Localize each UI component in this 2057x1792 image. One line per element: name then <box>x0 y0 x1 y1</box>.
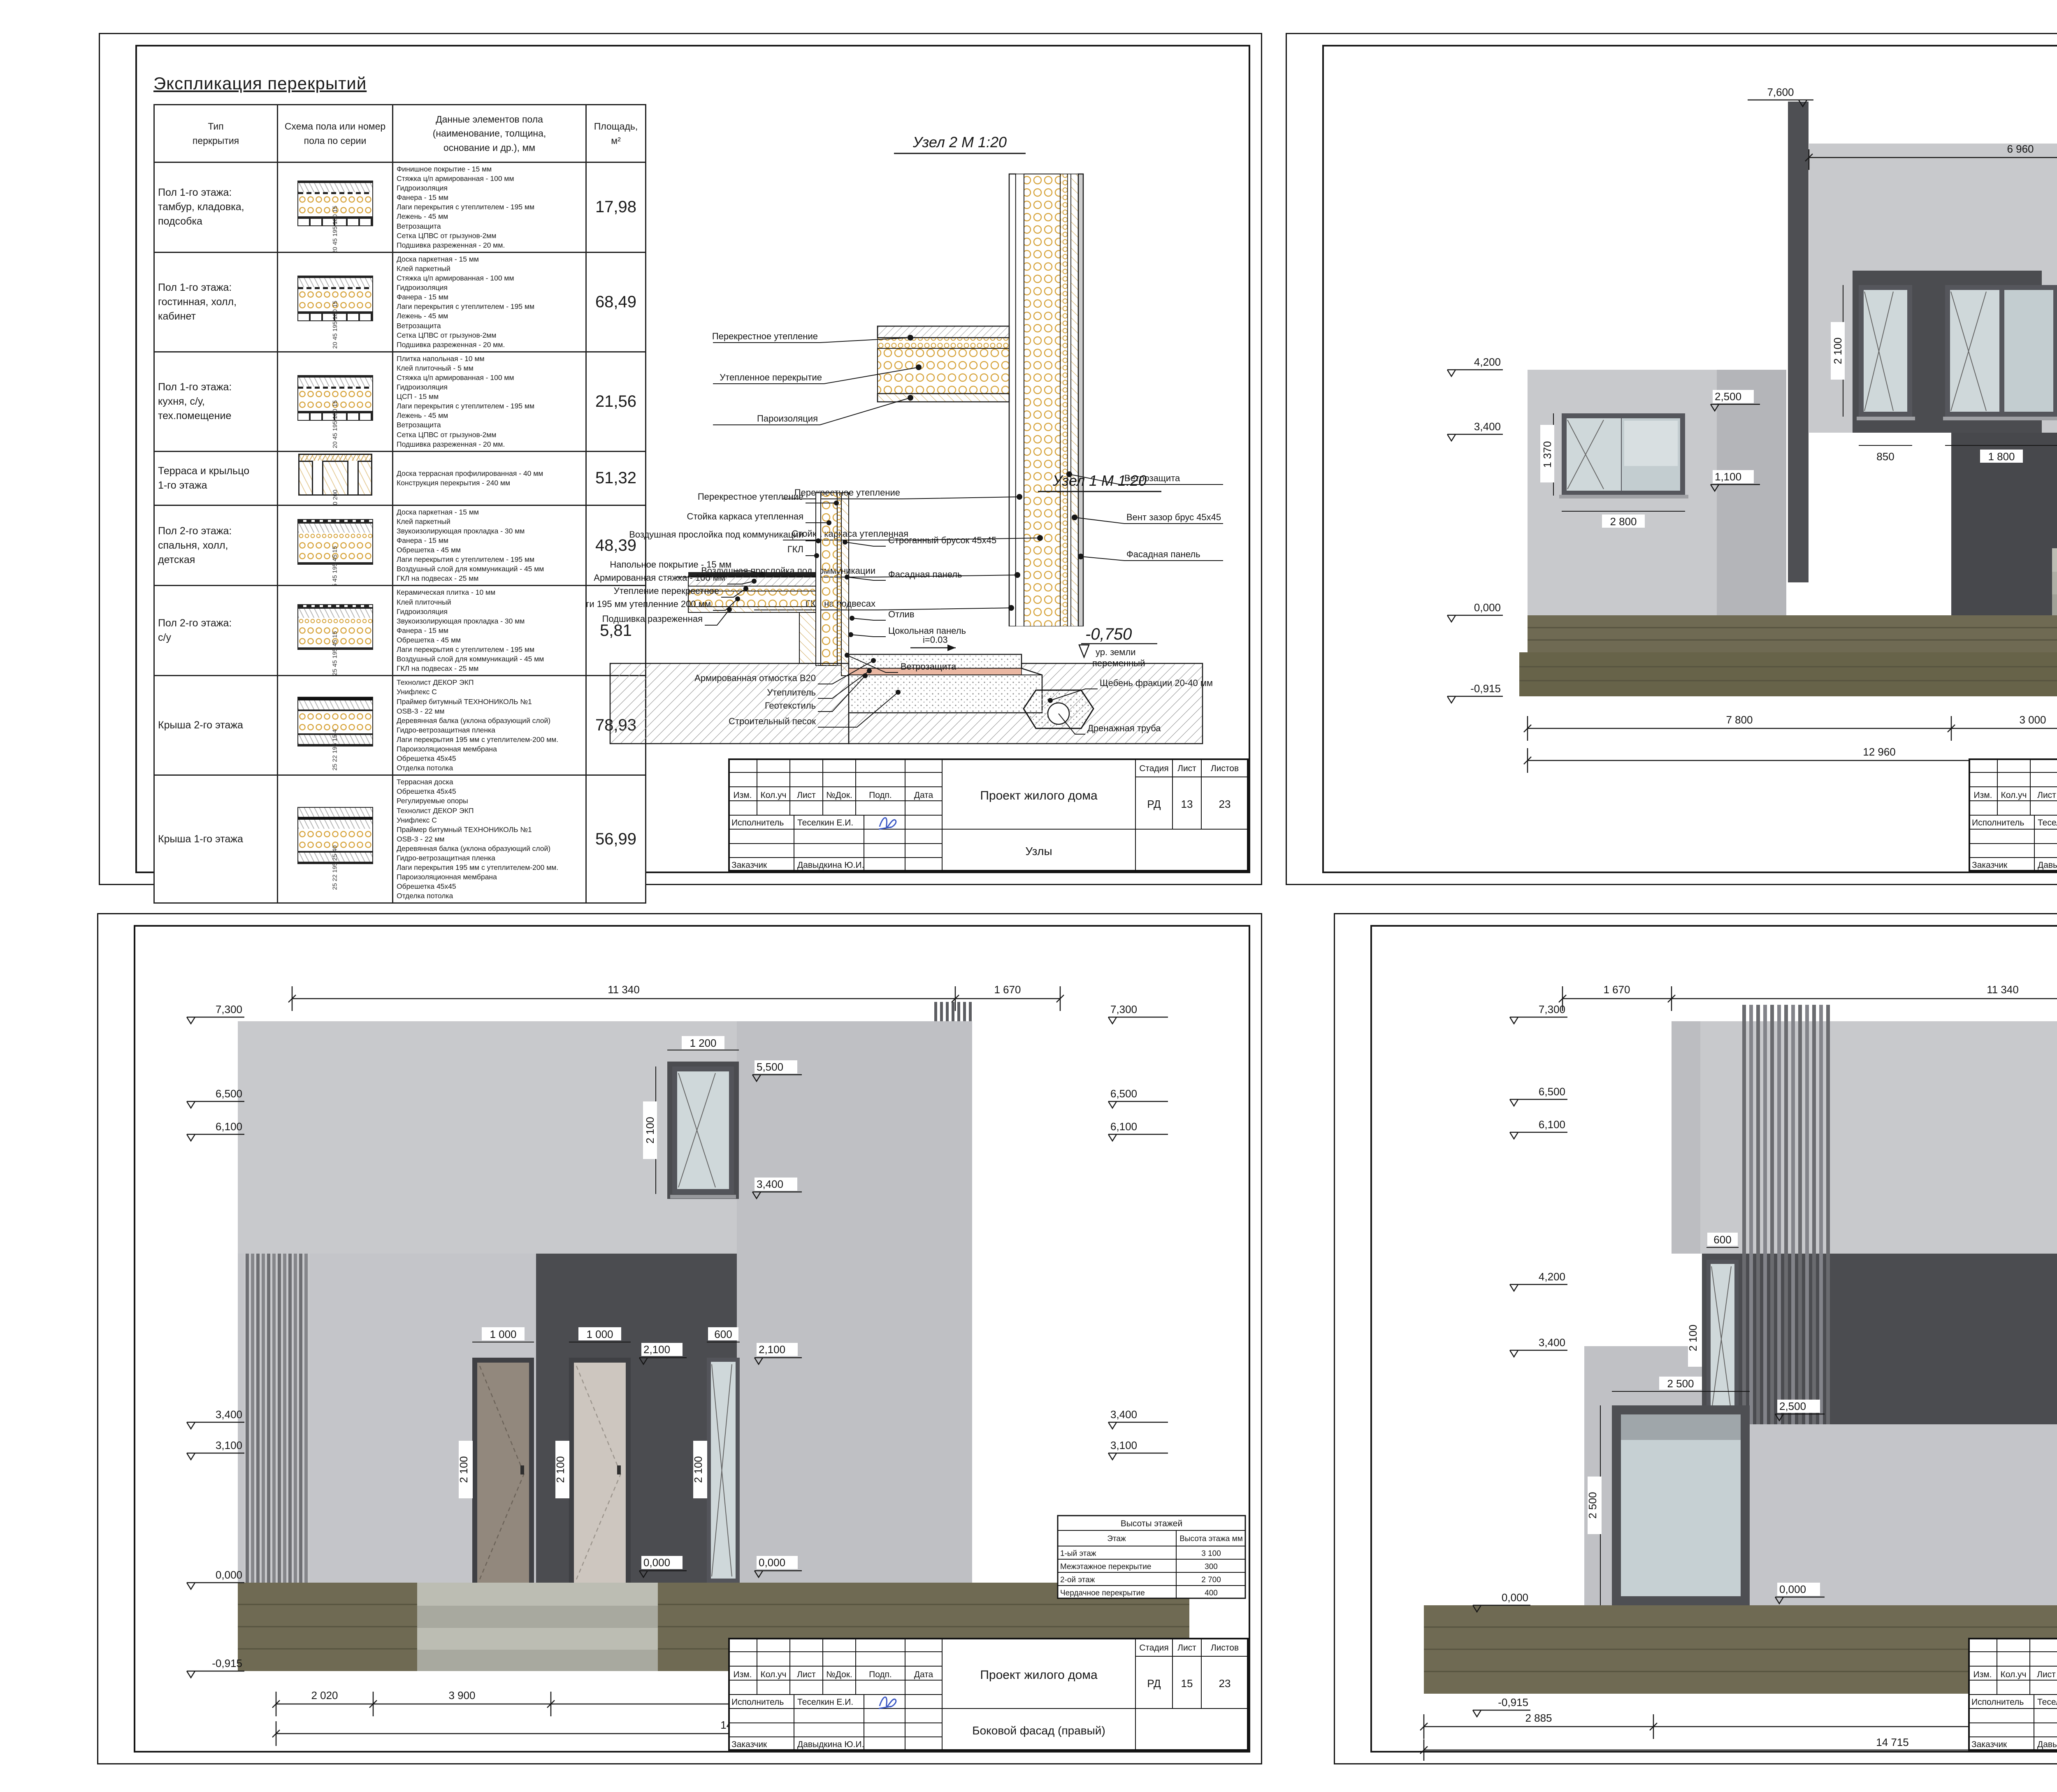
floor-area: 68,49 <box>586 252 646 352</box>
terrace-steps <box>2052 572 2057 594</box>
dim-label: 2 500 <box>1667 1377 1694 1390</box>
executor-name: Теселкин Е.И. <box>797 818 853 828</box>
project-title: Проект жилого дома <box>980 1668 1098 1682</box>
explication-title: Экспликация перекрытий <box>153 74 367 93</box>
entrance-dark-panel <box>536 1254 737 1583</box>
dim-label: 12 960 <box>1863 746 1896 758</box>
sheet-uzly: Экспликация перекрытий Тип перкрытия Схе… <box>99 33 1262 885</box>
title-block: Изм. Кол.уч Лист №Док. Подп. Дата Исполн… <box>728 758 1249 872</box>
ground-note: переменный <box>1092 658 1145 668</box>
dim-label: 1 800 <box>1988 450 2015 463</box>
stage-label: Стадия <box>1139 764 1169 773</box>
dim-label: 600 <box>1713 1233 1731 1246</box>
level-label: 6,100 <box>216 1120 242 1133</box>
heights-floor: Чердачное перекрытие <box>1060 1589 1145 1597</box>
customer-label: Заказчик <box>1971 1740 2007 1749</box>
executor-label: Исполнитель <box>1972 818 2024 828</box>
dim-label: 14 715 <box>1876 1736 1909 1748</box>
level-label: 6,100 <box>1110 1120 1137 1133</box>
leader-label: Строганный брусок 45х45 <box>888 535 996 545</box>
stamp-col: №Док. <box>826 791 852 800</box>
porch-steps <box>417 1583 658 1671</box>
dim-label: 2 100 <box>692 1456 704 1483</box>
leader-label: ГКЛ <box>787 544 803 554</box>
level-label: 3,400 <box>757 1178 783 1190</box>
floor-layers: Финишное покрытие - 15 мм Стяжка ц/п арм… <box>393 162 586 253</box>
stack-dims: 20 45 195 180 15 <box>332 400 339 448</box>
customer-label: Заказчик <box>731 1740 767 1749</box>
executor-name: Теселкин Е.И. <box>797 1697 853 1707</box>
window-glass <box>677 1071 729 1189</box>
heights-value: 400 <box>1205 1589 1218 1597</box>
level-label: 3,400 <box>1474 420 1501 433</box>
executor-name: Теселкин Е.И. <box>2038 818 2057 828</box>
customer-label: Заказчик <box>1972 860 2008 870</box>
executor-label: Исполнитель <box>1971 1697 2024 1707</box>
title-block: Изм.Кол.учЛист№Док.Подп.Дата Исполнитель… <box>728 1638 1249 1751</box>
first-floor-volume <box>1702 1424 2057 1605</box>
leader-label: Отлив <box>888 609 915 619</box>
level-label: 3,100 <box>1110 1439 1137 1451</box>
heights-title: Высоты этажей <box>1121 1519 1182 1528</box>
heights-floor: 1-ый этаж <box>1060 1549 1096 1558</box>
floor-layers: Керамическая плитка - 10 мм Клей плиточн… <box>393 586 586 676</box>
table-row: Пол 2-го этажа: с/у 25 45 195 45 15 Кера… <box>154 586 646 676</box>
slope-label: i=0.03 <box>923 635 948 645</box>
floor-layers: Доска паркетная - 15 мм Клей паркетный З… <box>393 505 586 586</box>
stack-dims: 20 45 195 180 15 <box>332 301 339 349</box>
second-floor-volume <box>1672 1021 2057 1254</box>
executor-name: Теселкин Е.И. <box>2037 1697 2057 1707</box>
leader-label: Фасадная панель <box>888 569 962 580</box>
page: { "palette":{"paper":"#ffffff","line":"#… <box>0 0 2057 1792</box>
floor-area: 21,56 <box>586 352 646 451</box>
stack-dims: 25 22 195 15 4 <box>332 730 339 771</box>
floor-type: Терраса и крыльцо 1-го этажа <box>154 451 278 505</box>
floor-layers: Террасная доска Обрешетка 45х45 Регулиру… <box>393 775 586 903</box>
executor-label: Исполнитель <box>731 818 784 828</box>
stamp-col: Дата <box>914 791 933 800</box>
dim-label: 1 200 <box>690 1037 716 1049</box>
window-glass <box>2004 290 2053 412</box>
stamp-col: Лист <box>2037 1670 2056 1679</box>
ground-level: -0,750 <box>1085 625 1132 643</box>
sheets-total: 23 <box>1219 798 1231 810</box>
customer-label: Заказчик <box>731 860 767 870</box>
leader-label: Перекрестное утепление <box>712 331 818 341</box>
dim-label: 2 500 <box>1586 1492 1599 1518</box>
level-label: 1,100 <box>1715 471 1741 483</box>
leader-label: Дренажная труба <box>1087 723 1161 733</box>
level-label: 0,000 <box>1474 601 1501 614</box>
node-title: Узел 1 М 1:20 <box>1052 472 1147 489</box>
stack-dims: 40 200 <box>332 489 339 505</box>
level-label: -0,915 <box>1498 1696 1528 1709</box>
terrace-steps <box>2052 548 2057 572</box>
window-glass <box>1864 290 1907 412</box>
door-handle <box>520 1465 524 1474</box>
node-title: Узел 2 М 1:20 <box>912 134 1007 151</box>
roof-slats <box>934 1002 972 1022</box>
dim-label: 1 670 <box>1603 983 1630 996</box>
leader-label: Напольное покрытие - 15 мм <box>610 559 731 570</box>
stack-dims: 25 45 195 45 15 <box>332 631 339 675</box>
gable-wall <box>737 1021 972 1583</box>
table-row: Пол 1-го этажа: гостинная, холл, кабинет… <box>154 252 646 352</box>
dim-label: 2 100 <box>1832 337 1844 364</box>
dim-label: 1 000 <box>586 1328 613 1340</box>
side-facade-left-drawing: 1 670 11 340 7,300 6,500 6,100 4,200 3,4… <box>1335 914 2057 1763</box>
level-label: 6,500 <box>1539 1085 1565 1098</box>
level-label: 3,100 <box>216 1439 242 1451</box>
level-label: 2,500 <box>1779 1400 1806 1412</box>
table-row: Крыша 1-го этажа 25 22 195 25 40 Террасн… <box>154 775 646 903</box>
node-1-detail: Узел 1 М 1:20 i=0.03 -0,750 ур. земли пе… <box>585 462 1235 746</box>
sheet-label: Лист <box>1177 764 1196 773</box>
dim-label: 2 800 <box>1610 515 1637 528</box>
col-header-type: Тип перкрытия <box>154 105 278 162</box>
first-floor-volume-side <box>1717 370 1786 615</box>
leader-label: Воздушная прослойка под коммуникации <box>629 529 803 540</box>
col-header-area: Площадь, м² <box>586 105 646 162</box>
floor-area: 17,98 <box>586 162 646 253</box>
col-header-scheme: Схема пола или номер пола по серии <box>278 105 393 162</box>
table-row: Крыша 2-го этажа 25 22 195 15 4 Технолис… <box>154 676 646 775</box>
sheet-number: 15 <box>1181 1677 1193 1690</box>
customer-name: Давыдкина Ю.И. <box>797 860 864 870</box>
doc-name: Узлы <box>1025 845 1052 858</box>
heights-value: 3 100 <box>1201 1549 1221 1558</box>
stamp-col: №Док. <box>826 1670 852 1679</box>
floor-type: Пол 2-го этажа: с/у <box>154 586 278 676</box>
door-handle <box>617 1465 621 1474</box>
sheets-label: Листов <box>1211 764 1239 773</box>
stamp-col: Кол.уч <box>761 1670 787 1679</box>
deck <box>1528 615 2057 652</box>
stage-label: Стадия <box>1139 1643 1169 1653</box>
stamp-col: Изм. <box>734 1670 752 1679</box>
level-label: 6,500 <box>216 1087 242 1100</box>
leader-label: Утепленное перекрытие <box>720 372 822 383</box>
stamp-col: Лист <box>797 791 816 800</box>
level-label: 3,400 <box>216 1408 242 1421</box>
heights-value: 300 <box>1205 1562 1218 1571</box>
dim-label: 7 800 <box>1726 714 1753 726</box>
level-label: 7,300 <box>216 1003 242 1015</box>
sheets-total: 23 <box>1219 1677 1231 1690</box>
floor-area: 56,99 <box>586 775 646 903</box>
sheet-label: Лист <box>1177 1643 1196 1653</box>
leader-label: Цокольная панель <box>888 626 966 636</box>
stack-dims: 25 22 195 25 40 <box>332 845 339 890</box>
level-label: 6,100 <box>1539 1118 1565 1131</box>
level-label: -0,915 <box>212 1657 242 1669</box>
customer-name: Давыдкина Ю.И. <box>2038 860 2057 870</box>
dim-label: 2 100 <box>644 1117 656 1143</box>
stamp-col: Дата <box>914 1670 933 1679</box>
front-facade-drawing: 6 960 7,600 4,200 3,400 0,000 -0,915 7,3… <box>1287 34 2057 884</box>
title-block: Изм.Кол.учЛист№Док.Подп.Дата Исполнитель… <box>1969 758 2057 872</box>
stage-value: РД <box>1147 798 1161 810</box>
stamp-col: Кол.уч <box>761 791 787 800</box>
table-row: Терраса и крыльцо 1-го этажа 40 200 Доск… <box>154 451 646 505</box>
ground-note: ур. земли <box>1096 647 1136 657</box>
floor-scheme <box>298 454 372 496</box>
sheet-number: 13 <box>1181 798 1193 810</box>
level-label: 4,200 <box>1474 356 1501 368</box>
level-label: 2,100 <box>643 1343 670 1356</box>
window-glass <box>1950 290 1999 412</box>
dim-label: 2 020 <box>311 1689 338 1702</box>
leader-label: Строительный песок <box>729 716 816 726</box>
level-label: -0,915 <box>1470 682 1501 695</box>
leader-label: Подшивка разреженная <box>602 614 703 624</box>
sheet-side-facade-left: 1 670 11 340 7,300 6,500 6,100 4,200 3,4… <box>1334 913 2057 1764</box>
window-sill <box>1857 417 1915 420</box>
leader-label: Перекрестное утепление <box>698 491 803 502</box>
leader-label: Ветрозащита <box>901 661 957 672</box>
leader-label: Геотекстиль <box>765 700 816 711</box>
floor-type: Пол 1-го этажа: кухня, с/у, тех.помещени… <box>154 352 278 451</box>
stamp-col: Изм. <box>1974 791 1992 800</box>
level-label: 0,000 <box>1779 1583 1806 1595</box>
deck-lower <box>1519 652 2057 696</box>
dim-label: 1 000 <box>490 1328 516 1340</box>
dim-label: 850 <box>1876 450 1894 463</box>
dim-label: 3 900 <box>448 1689 475 1702</box>
garage-door-top <box>1621 1414 1741 1440</box>
customer-name: Давыдкина Ю.И. <box>2037 1740 2057 1749</box>
dim-label: 3 000 <box>2019 714 2046 726</box>
side-facade-right-drawing: 11 340 1 670 7,300 6,500 6,100 3,400 3,1… <box>98 914 1261 1763</box>
stamp-col: Лист <box>797 1670 816 1679</box>
leader-label: Лаги 195 мм утепленние 200 мм <box>585 599 711 609</box>
leader-label: Утеплитель <box>767 687 816 698</box>
dim-label: 2 100 <box>1687 1324 1699 1351</box>
heights-table: Высоты этажей Этаж Высота этажа мм 1-ый … <box>1057 1515 1246 1599</box>
heights-value: 2 700 <box>1201 1576 1221 1584</box>
stage-value: РД <box>1147 1677 1161 1690</box>
floor-layers: Доска террасная профилированная - 40 мм … <box>393 451 586 505</box>
dim-label: 2 100 <box>457 1456 470 1483</box>
stamp-col: Кол.уч <box>2001 1670 2027 1679</box>
table-row: Пол 1-го этажа: тамбур, кладовка, подсоб… <box>154 162 646 253</box>
sheet-side-facade-right: 11 340 1 670 7,300 6,500 6,100 3,400 3,1… <box>97 913 1262 1764</box>
level-label: 3,400 <box>1539 1336 1565 1349</box>
sheets-label: Листов <box>1211 1643 1239 1653</box>
title-block: Изм.Кол.учЛист№Док.Подп.Дата Исполнитель… <box>1968 1638 2057 1751</box>
level-label: 7,600 <box>1767 86 1794 98</box>
stamp-col: Подп. <box>869 791 892 800</box>
heights-col: Этаж <box>1107 1535 1126 1543</box>
window-sill <box>1943 417 2057 420</box>
terrace-steps <box>2052 594 2057 615</box>
stamp-col: Изм. <box>734 791 752 800</box>
level-label: 7,300 <box>1539 1003 1565 1015</box>
floor-type: Крыша 1-го этажа <box>154 775 278 903</box>
floor-type: Пол 1-го этажа: тамбур, кладовка, подсоб… <box>154 162 278 253</box>
volume-shadow <box>1672 1021 1700 1254</box>
stamp-col: Подп. <box>869 1670 892 1679</box>
window-glass-light <box>1624 421 1678 466</box>
table-row: Пол 2-го этажа: спальня, холл, детская 2… <box>154 505 646 586</box>
stamp-col: Лист <box>2037 791 2056 800</box>
explication-table: Тип перкрытия Схема пола или номер пола … <box>153 104 646 904</box>
dim-label: 2 885 <box>1525 1712 1552 1724</box>
heights-floor: 2-ой этаж <box>1060 1576 1095 1584</box>
col-header-data: Данные элементов пола (наименование, тол… <box>393 105 586 162</box>
window-glass <box>1567 418 1621 491</box>
executor-label: Исполнитель <box>731 1697 784 1707</box>
level-label: 0,000 <box>759 1556 785 1569</box>
dim-label: 6 960 <box>2007 143 2034 155</box>
floor-layers: Технолист ДЕКОР ЭКП Унифлекс С Праймер б… <box>393 676 586 775</box>
floor-type: Пол 2-го этажа: спальня, холл, детская <box>154 505 278 586</box>
heights-col: Высота этажа мм <box>1179 1535 1243 1543</box>
chimney <box>1788 102 1809 582</box>
garage-door <box>1621 1414 1741 1596</box>
leader-label: Пароизоляция <box>757 413 818 424</box>
leader-label: Стойка каркаса утепленная <box>687 511 803 522</box>
floor-layers: Доска паркетная - 15 мм Клей паркетный С… <box>393 252 586 352</box>
customer-name: Давыдкина Ю.И. <box>797 1740 864 1749</box>
level-label: 0,000 <box>216 1569 242 1581</box>
accent-dark-band <box>1702 1254 2057 1424</box>
level-label: 4,200 <box>1539 1270 1565 1283</box>
level-label: 0,000 <box>1502 1591 1528 1604</box>
level-label: 2,100 <box>759 1343 785 1356</box>
leader-label: Армированная стяжка - 100 мм <box>594 573 725 583</box>
level-label: 5,500 <box>757 1061 783 1073</box>
dim-label: 1 670 <box>994 983 1021 996</box>
dim-label: 11 340 <box>1987 983 2019 996</box>
leader-label: Армированная отмостка В20 <box>694 673 816 683</box>
heights-floor: Межэтажное перекрытие <box>1060 1562 1151 1571</box>
level-label: 3,400 <box>1110 1408 1137 1421</box>
floor-type: Пол 1-го этажа: гостинная, холл, кабинет <box>154 252 278 352</box>
dim-label: 1 370 <box>1541 441 1553 468</box>
table-row: Пол 1-го этажа: кухня, с/у, тех.помещени… <box>154 352 646 451</box>
level-label: 0,000 <box>643 1556 670 1569</box>
window-sill <box>1559 495 1688 498</box>
doc-name: Боковой фасад (правый) <box>972 1724 1105 1737</box>
floor-layers: Плитка напольная - 10 мм Клей плиточный … <box>393 352 586 451</box>
level-label: 2,500 <box>1715 390 1741 403</box>
level-label: 6,500 <box>1110 1087 1137 1100</box>
sheet-front-facade: 6 960 7,600 4,200 3,400 0,000 -0,915 7,3… <box>1286 33 2057 885</box>
slat-screen <box>244 1254 310 1583</box>
window-sill <box>670 1195 736 1199</box>
dim-label: 11 340 <box>608 983 640 996</box>
floor-type: Крыша 2-го этажа <box>154 676 278 775</box>
dim-label: 2 100 <box>554 1456 566 1483</box>
leader-label: Щебень фракции 20-40 мм <box>1100 678 1213 688</box>
stamp-col: Кол.уч <box>2001 791 2027 800</box>
stack-dims: 25 45 195 45 15 <box>332 546 339 586</box>
stack-dims: 20 45 195 180 15 <box>332 206 339 253</box>
project-title: Проект жилого дома <box>980 789 1098 802</box>
dim-label: 600 <box>714 1328 732 1340</box>
level-label: 7,300 <box>1110 1003 1137 1015</box>
leader-label: Утепление перекрестное <box>614 586 719 596</box>
stamp-col: Изм. <box>1973 1670 1992 1679</box>
